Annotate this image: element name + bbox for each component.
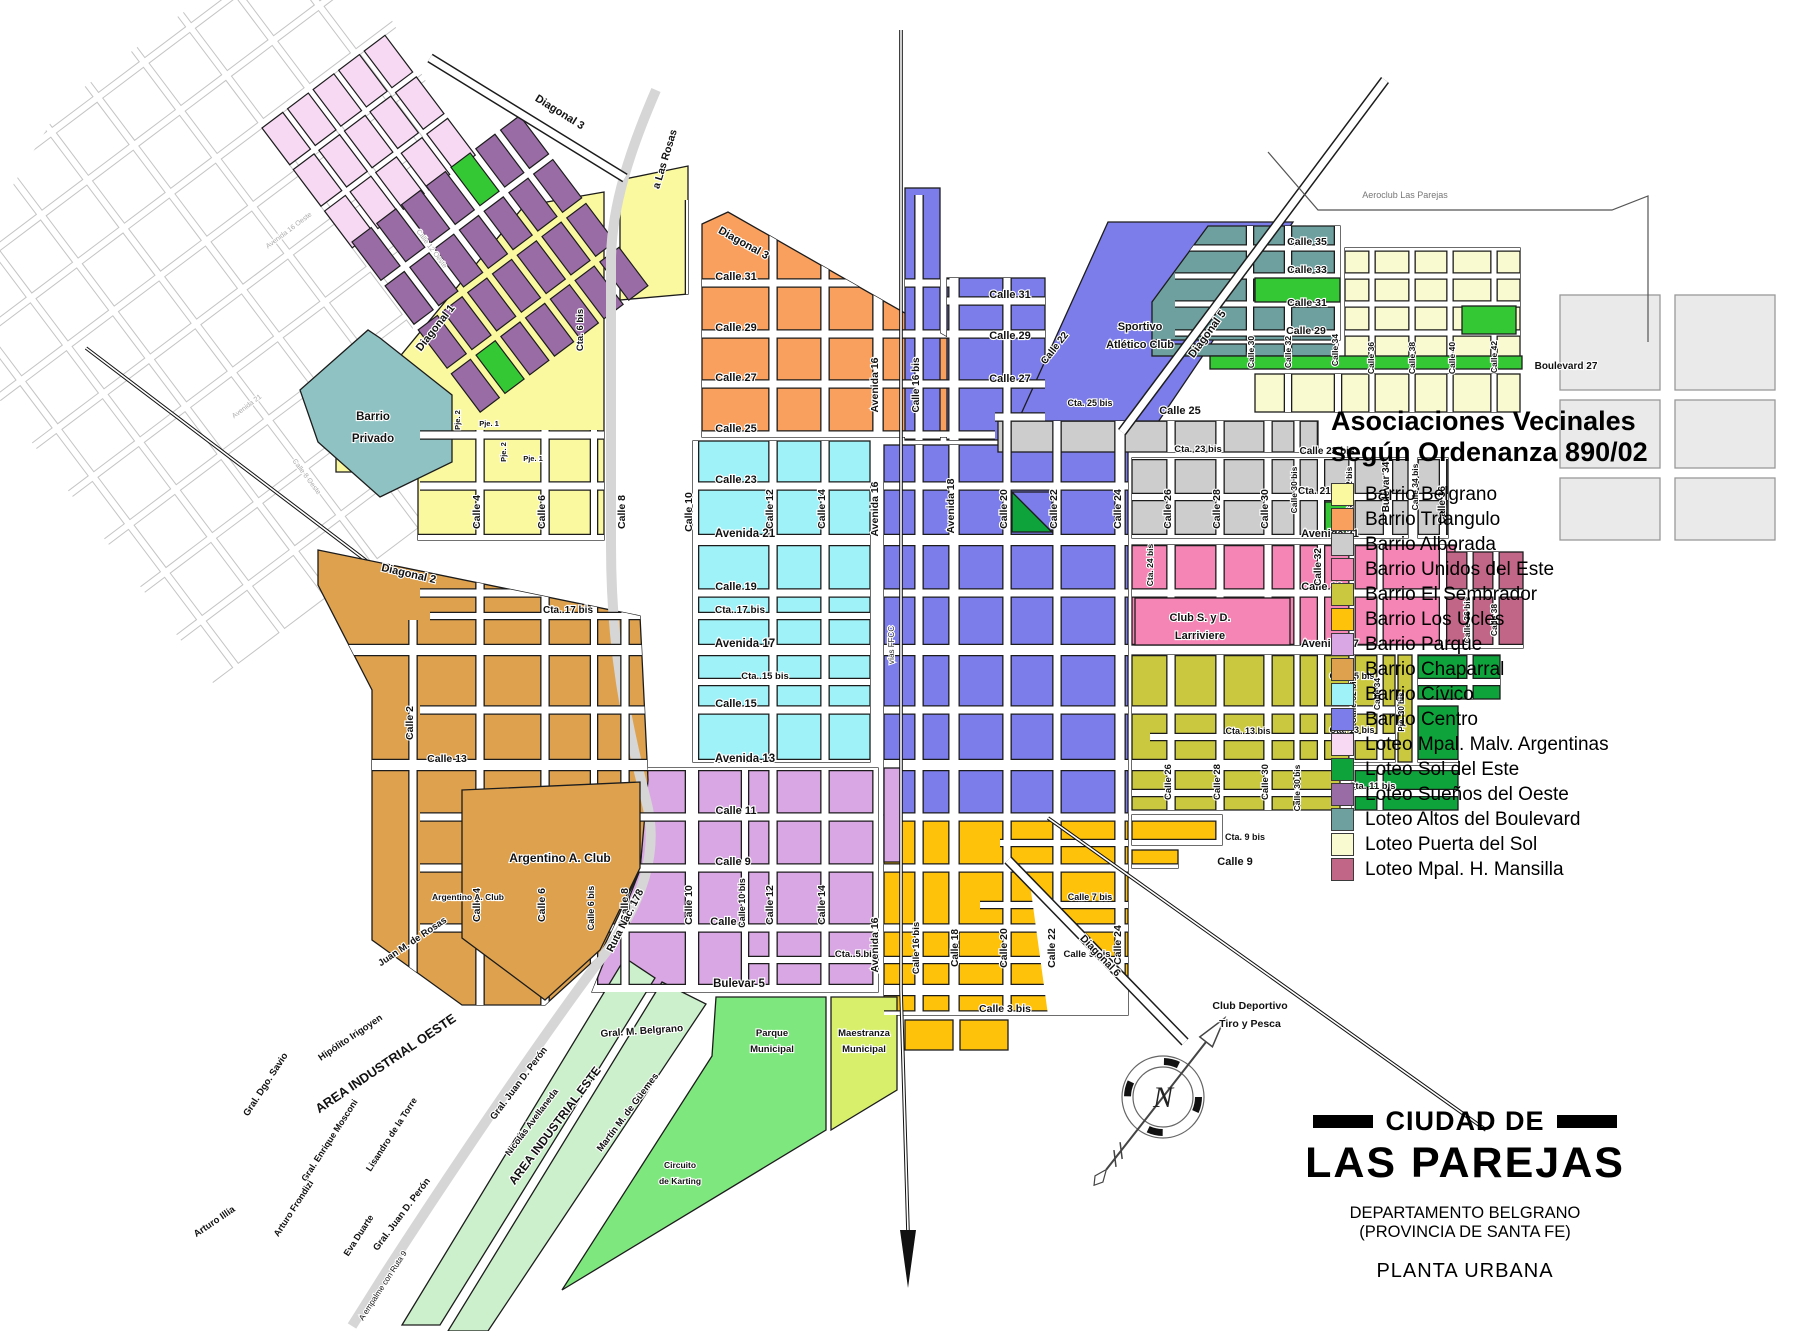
map-label: Calle 15 (715, 698, 757, 710)
map-label: Calle 29 (989, 330, 1031, 342)
map-label: Calle 9 (1217, 856, 1252, 868)
map-label: Calle 31 (715, 271, 757, 283)
projected-block (535, 0, 608, 40)
projected-block (0, 468, 42, 541)
map-label: Calle 10 (683, 885, 695, 925)
legend-swatch (1331, 508, 1354, 531)
map-label: AREA INDUSTRIAL OESTE (312, 1010, 458, 1116)
projected-block (114, 660, 187, 733)
parque-strip-block (884, 768, 901, 862)
legend-item-label: Loteo Mpal. H. Mansilla (1365, 860, 1564, 879)
projected-block (772, 89, 845, 162)
map-label: Cta. 9 bis (1225, 832, 1265, 842)
map-label: Calle 4 (471, 495, 483, 529)
map-label: Gral. Enrique Mosconi (299, 1098, 359, 1184)
map-label: Cta. 15 bis (741, 671, 789, 682)
legend-swatch (1331, 583, 1354, 606)
plan-title: PLANTA URBANA (1283, 1260, 1647, 1283)
legend-item-label: Barrio Chaparral (1365, 660, 1504, 679)
map-label: Calle 20 (998, 489, 1010, 529)
legend-title: Asociaciones Vecinales según Ordenanza 8… (1331, 406, 1800, 468)
projected-block (0, 41, 11, 114)
projected-block (808, 137, 881, 210)
legend-title-line1: Asociaciones Vecinales (1331, 406, 1636, 436)
map-label: Calle 30 bis (1289, 466, 1299, 513)
map-label: Calle 3 bis (979, 1003, 1031, 1015)
projected-block (618, 0, 691, 53)
map-label: Calle 36 (1366, 342, 1376, 374)
map-label: Calle 40 (1447, 342, 1457, 374)
projected-block (31, 0, 104, 45)
map-label: Calle 2 (404, 706, 416, 740)
legend-item-label: Barrio Los Ucles (1365, 610, 1504, 629)
map-page: N Calle 31Calle 29Calle 27Calle 25Calle … (0, 0, 1800, 1331)
map-label: Calle 25 (715, 423, 757, 435)
map-label: Cta. 25 bis (1067, 398, 1112, 408)
legend-item-label: Loteo Puerta del Sol (1365, 835, 1537, 854)
map-label: Calle 23 (715, 474, 757, 486)
projected-block (0, 682, 58, 755)
compass-north-letter: N (1152, 1081, 1175, 1114)
map-label: Hipólito Irigoyen (316, 1012, 384, 1063)
map-label: Calle 25 (1159, 405, 1201, 417)
map-label: de Karting (659, 1176, 701, 1186)
legend-list: Barrio Belgrano Barrio Tríangulo Barrio … (1331, 482, 1800, 882)
projected-block (700, 0, 773, 66)
railway-arrow (900, 1230, 916, 1288)
map-label: Calle 18 (950, 929, 961, 967)
legend-swatch (1331, 558, 1354, 581)
map-label: Calle 33 (1287, 264, 1327, 276)
map-label: Boulevard 27 (1535, 361, 1598, 372)
zone-maestranza (831, 997, 897, 1130)
legend-item-label: Barrio El Sembrador (1365, 585, 1537, 604)
map-label: Calle 26 (1162, 489, 1174, 529)
map-label: Pje. 1 (523, 454, 543, 463)
projected-block (664, 0, 737, 18)
map-label: Eva Duarte (341, 1213, 375, 1258)
title-row: CIUDAD DE (1283, 1106, 1647, 1137)
legend-item: Barrio Alborada (1331, 532, 1800, 557)
map-label: Club Deportivo (1212, 1000, 1287, 1012)
projected-block (453, 0, 526, 27)
map-label: Tiro y Pesca (1219, 1018, 1281, 1030)
map-label: Calle 10 (683, 492, 695, 532)
legend-item-label: Loteo Sueños del Oeste (1365, 785, 1569, 804)
legend-item: Barrio El Sembrador (1331, 582, 1800, 607)
legend-item: Barrio Centro (1331, 707, 1800, 732)
title-block: CIUDAD DE LAS PAREJAS DEPARTAMENTO BELGR… (1283, 1106, 1647, 1283)
projected-block (762, 171, 835, 244)
map-label: Aeroclub Las Parejas (1362, 190, 1448, 200)
projected-block (78, 612, 151, 685)
legend-swatch (1331, 783, 1354, 806)
map-label: Avenida 16 (869, 357, 881, 412)
legend-swatch (1331, 683, 1354, 706)
legend-item: Barrio Parque (1331, 632, 1800, 657)
map-label: Avenida 16 (869, 917, 881, 972)
map-label: Calle 29 (715, 322, 757, 334)
map-label: Calle 11 (716, 805, 757, 817)
zone-los-ucles (960, 1020, 1008, 1050)
map-label: Calle 14 (816, 885, 828, 925)
title-pre: CIUDAD DE (1385, 1106, 1544, 1137)
legend-swatch (1331, 708, 1354, 731)
legend-item: Loteo Altos del Boulevard (1331, 807, 1800, 832)
legend-item-label: Barrio Cívico (1365, 685, 1474, 704)
map-label: Calle 30 (1259, 489, 1271, 529)
map-label: Avenida 13 (715, 753, 775, 765)
province-line: (PROVINCIA DE SANTA FE) (1283, 1223, 1647, 1242)
projected-block (407, 0, 480, 62)
map-label: Calle 6 (536, 495, 548, 529)
projected-block (654, 28, 727, 101)
legend-item-label: Barrio Centro (1365, 710, 1478, 729)
projected-block (726, 124, 799, 197)
legend-item: Barrio Los Ucles (1331, 607, 1800, 632)
legend-item: Loteo Sol del Este (1331, 757, 1800, 782)
map-label: Calle 6 (536, 888, 548, 922)
legend-item: Barrio Cívico (1331, 682, 1800, 707)
projected-block (736, 41, 809, 114)
compass-rose: N (1088, 1013, 1231, 1190)
legend-swatch (1331, 483, 1354, 506)
map-label: Atlético Club (1106, 339, 1174, 351)
legend-swatch (1331, 658, 1354, 681)
projected-block (5, 516, 78, 589)
legend-item-label: Loteo Altos del Boulevard (1365, 810, 1581, 829)
title-bar-right (1557, 1115, 1617, 1128)
legend-item: Barrio Unidos del Este (1331, 557, 1800, 582)
legend-item-label: Barrio Alborada (1365, 535, 1496, 554)
legend-item-label: Loteo Sol del Este (1365, 760, 1519, 779)
map-label: Calle 27 (989, 373, 1031, 385)
map-label: Lisandro de la Torre (364, 1096, 419, 1173)
map-label: Cta. 6 bis (575, 309, 586, 351)
city-title: LAS PAREJAS (1283, 1139, 1647, 1188)
map-label: Club S. y D. (1169, 612, 1230, 624)
legend-item-label: Loteo Mpal. Malv. Argentinas (1365, 735, 1609, 754)
legend-item: Loteo Mpal. Malv. Argentinas (1331, 732, 1800, 757)
map-label: Calle 32 (1313, 548, 1324, 586)
map-label: Maestranza (838, 1028, 890, 1039)
map-label: Calle 9 (715, 856, 750, 868)
legend-swatch (1331, 633, 1354, 656)
projected-block (571, 15, 644, 88)
map-label: Calle 42 (1489, 341, 1499, 373)
map-label: Municipal (842, 1044, 886, 1055)
map-label: Calle 24 (1112, 489, 1124, 529)
map-label: vías FFCC (887, 626, 896, 664)
map-label: Larriviere (1175, 630, 1225, 642)
map-label: Calle 27 (715, 372, 757, 384)
map-label: Calle 22 (1048, 489, 1060, 529)
legend-item-label: Barrio Belgrano (1365, 485, 1497, 504)
map-label: Calle 28 (1212, 764, 1223, 800)
map-label: Calle 30 (1260, 764, 1271, 800)
map-label: Calle 12 (764, 885, 776, 925)
map-label: Cta. 17 bis (543, 605, 593, 616)
projected-block (0, 421, 6, 494)
map-label: A empalme con Ruta 9 (357, 1249, 409, 1322)
projected-block (0, 634, 21, 707)
projected-block (41, 564, 114, 637)
map-label: Calle 7 bis (1068, 892, 1113, 902)
department-line: DEPARTAMENTO BELGRANO (1283, 1204, 1647, 1223)
map-label: Pje. 1 (479, 419, 499, 428)
map-label: Calle 31 (989, 289, 1031, 301)
legend-item: Loteo Puerta del Sol (1331, 832, 1800, 857)
map-label: Avenida 17 (715, 638, 775, 650)
map-label: Bulevar 5 (713, 978, 765, 990)
legend-item: Barrio Tríangulo (1331, 507, 1800, 532)
map-label: Avenida 16 (869, 481, 881, 536)
projected-block (0, 599, 68, 672)
projected-block (31, 647, 104, 720)
legend-item-label: Barrio Tríangulo (1365, 510, 1500, 529)
map-label: Calle 19 (715, 581, 757, 593)
map-label: Municipal (750, 1044, 794, 1055)
map-label: Calle 8 (616, 495, 628, 529)
projected-block (21, 730, 94, 803)
projected-block (489, 2, 562, 75)
map-label: Arturo Frondizi (272, 1178, 316, 1238)
map-label: Avenida 18 (945, 478, 957, 533)
legend-swatch (1331, 833, 1354, 856)
map-label: Calle 31 (1287, 297, 1327, 309)
legend-item: Barrio Chaparral (1331, 657, 1800, 682)
map-label: Calle 10 bis (737, 878, 747, 928)
projected-block (77, 0, 150, 10)
map-label: Calle 30 (1246, 336, 1256, 368)
title-bar-left (1313, 1115, 1373, 1128)
legend-item-label: Barrio Unidos del Este (1365, 560, 1554, 579)
map-label: Gral. Dgo. Savio (241, 1051, 290, 1119)
map-label: Calle 28 (1211, 489, 1223, 529)
projected-block (582, 0, 655, 5)
green-block-puertasol (1462, 306, 1516, 334)
projected-block (0, 0, 21, 32)
legend-item: Loteo Mpal. H. Mansilla (1331, 857, 1800, 882)
map-label: Calle 26 (1163, 764, 1174, 800)
map-label: Cta. 17 bis (715, 605, 765, 616)
map-label: Argentino A. Club (509, 851, 611, 865)
legend: Asociaciones Vecinales según Ordenanza 8… (1331, 406, 1800, 882)
legend-swatch (1331, 533, 1354, 556)
legend-swatch (1331, 758, 1354, 781)
projected-block (690, 76, 763, 149)
projected-block (67, 695, 140, 768)
legend-item: Loteo Sueños del Oeste (1331, 782, 1800, 807)
map-label: Calle 38 (1407, 342, 1417, 374)
legend-swatch (1331, 858, 1354, 881)
map-label: Calle 22 (1046, 928, 1058, 968)
map-label: Calle 20 (998, 928, 1010, 968)
map-label: Calle 16 bis (911, 922, 922, 974)
map-label: Calle 29 (1286, 325, 1326, 337)
map-label: Arturo Illia (192, 1204, 238, 1240)
map-label: Parque (756, 1028, 788, 1039)
map-label: Calle 30 bis (1292, 764, 1302, 811)
map-label: Privado (352, 433, 394, 445)
map-label: Calle 6 bis (586, 886, 596, 931)
map-label: Barrio (356, 411, 390, 423)
map-label: Calle 14 (816, 489, 828, 529)
map-label: Cta. 24 bis (1145, 543, 1155, 586)
projected-block (0, 6, 57, 79)
map-label: Cta. 23 bis (1174, 444, 1222, 455)
map-label: Pje. 2 (453, 410, 462, 430)
legend-swatch (1331, 733, 1354, 756)
legend-item: Barrio Belgrano (1331, 482, 1800, 507)
map-label: Pje. 2 (499, 442, 508, 462)
map-label: Calle 12 (764, 489, 776, 529)
map-label: Calle 34 (1330, 334, 1340, 366)
map-label: Calle 35 (1287, 236, 1327, 248)
zone-los-ucles (905, 1020, 953, 1050)
projected-block (0, 551, 32, 624)
map-label: Calle 16 bis (911, 357, 922, 412)
map-label: Circuito (664, 1160, 696, 1170)
legend-title-line2: según Ordenanza 890/02 (1331, 437, 1648, 467)
map-label: Cta. 13 bis (1225, 726, 1270, 736)
map-label: Argentino A. Club (432, 892, 504, 902)
map-label: Calle 24 (1112, 925, 1124, 965)
map-label: Sportivo (1118, 321, 1163, 333)
legend-swatch (1331, 808, 1354, 831)
map-label: Calle 13 (427, 753, 467, 765)
legend-item-label: Barrio Parque (1365, 635, 1482, 654)
map-label: Calle 32 (1283, 336, 1293, 368)
legend-swatch (1331, 608, 1354, 631)
